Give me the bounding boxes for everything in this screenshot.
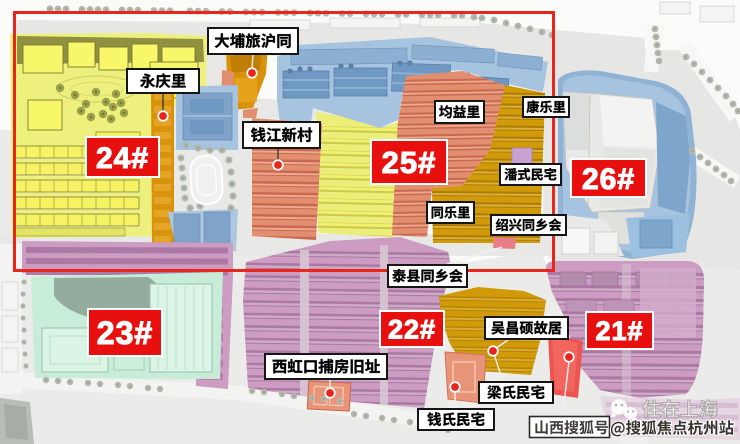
- svg-text:22#: 22#: [388, 315, 436, 345]
- svg-text:26#: 26#: [582, 163, 635, 196]
- svg-text:24#: 24#: [96, 142, 149, 175]
- svg-text:25#: 25#: [382, 145, 437, 180]
- svg-text:21#: 21#: [595, 316, 643, 346]
- svg-text:23#: 23#: [97, 315, 153, 351]
